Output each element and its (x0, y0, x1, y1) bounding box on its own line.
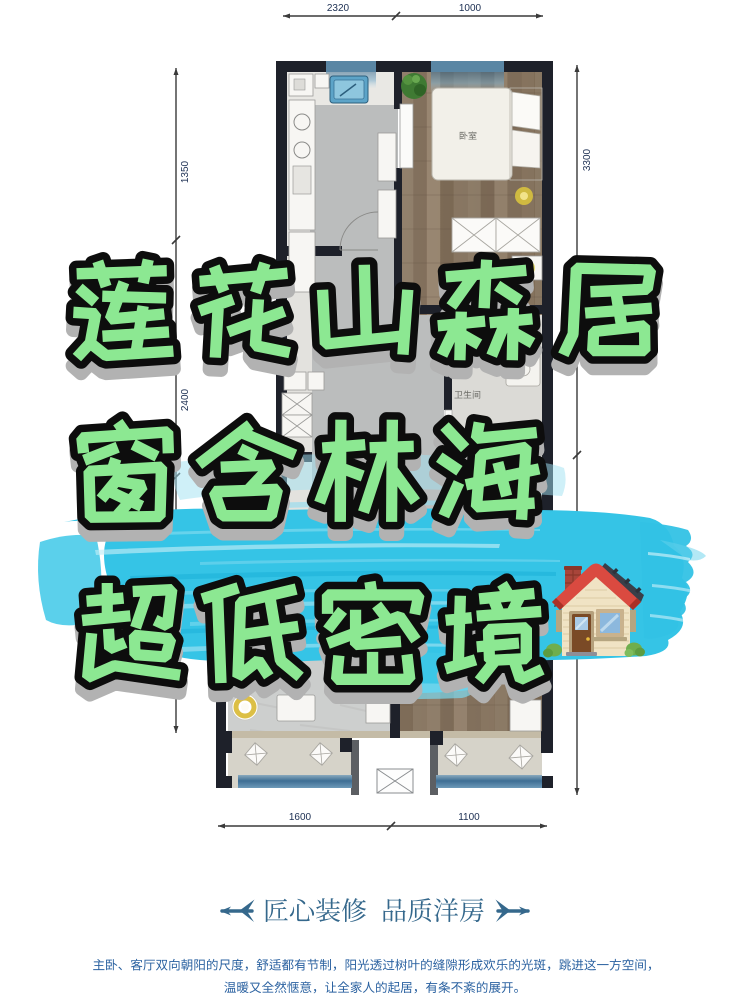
svg-text:1000: 1000 (459, 3, 482, 14)
svg-text:1100: 1100 (458, 812, 480, 823)
svg-text:2400: 2400 (180, 388, 191, 411)
svg-text:1350: 1350 (180, 160, 191, 183)
svg-text:1600: 1600 (289, 812, 312, 823)
svg-text:3300: 3300 (582, 148, 593, 171)
svg-text:2320: 2320 (327, 3, 350, 14)
